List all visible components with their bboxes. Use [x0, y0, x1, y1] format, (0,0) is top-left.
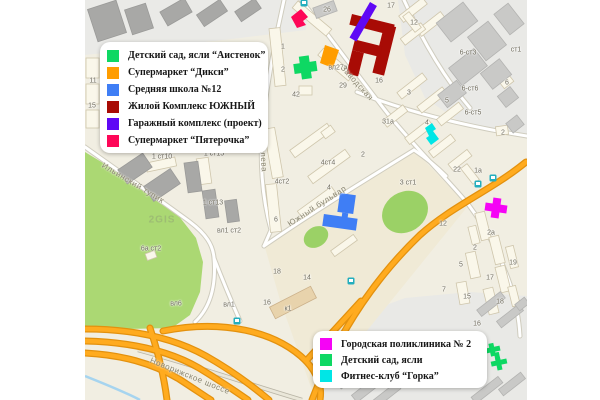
legend-item: Супермаркет “Дикси”: [107, 64, 260, 81]
bus-stop-icon: [475, 181, 482, 188]
legend-item: Городская поликлиника № 2: [320, 336, 479, 352]
legend-swatch: [107, 84, 119, 96]
legend-label: Городская поликлиника № 2: [341, 339, 471, 350]
bus-stop-icon: [490, 175, 497, 182]
legend-item: Фитнес-клуб “Горка”: [320, 368, 479, 384]
legend-item: Детский сад, ясли: [320, 352, 479, 368]
bus-stop-icon: [301, 0, 308, 7]
legend-label: Средняя школа №12: [128, 84, 221, 95]
legend-swatch: [107, 118, 119, 130]
legend-swatch: [107, 135, 119, 147]
bus-stop-icon: [348, 278, 355, 285]
legend-label: Супермаркет “Пятерочка”: [128, 135, 249, 146]
legend-label: Детский сад, ясли “Аистенок”: [128, 50, 265, 61]
legend-swatch: [320, 338, 332, 350]
legend-swatch: [320, 370, 332, 382]
legend-item: Жилой Комплекс ЮЖНЫЙ: [107, 98, 260, 115]
map-screenshot: 11151 ст101 ст151 ст13вл1 ст26а ст2вл6вл…: [0, 0, 600, 400]
legend-label: Фитнес-клуб “Горка”: [341, 371, 439, 382]
map-canvas[interactable]: [0, 0, 600, 400]
legend-swatch: [107, 101, 119, 113]
legend-item: Супермаркет “Пятерочка”: [107, 132, 260, 149]
legend-item: Средняя школа №12: [107, 81, 260, 98]
legend-bottom-right: Городская поликлиника № 2Детский сад, яс…: [313, 331, 487, 388]
legend-label: Супермаркет “Дикси”: [128, 67, 229, 78]
legend-swatch: [107, 67, 119, 79]
legend-swatch: [320, 354, 332, 366]
legend-item: Детский сад, ясли “Аистенок”: [107, 47, 260, 64]
legend-top-left: Детский сад, ясли “Аистенок”Супермаркет …: [100, 42, 268, 153]
legend-label: Гаражный комплекс (проект): [128, 118, 262, 129]
bus-stop-icon: [234, 318, 241, 325]
legend-label: Детский сад, ясли: [341, 355, 423, 366]
legend-item: Гаражный комплекс (проект): [107, 115, 260, 132]
legend-label: Жилой Комплекс ЮЖНЫЙ: [128, 101, 255, 112]
legend-swatch: [107, 50, 119, 62]
